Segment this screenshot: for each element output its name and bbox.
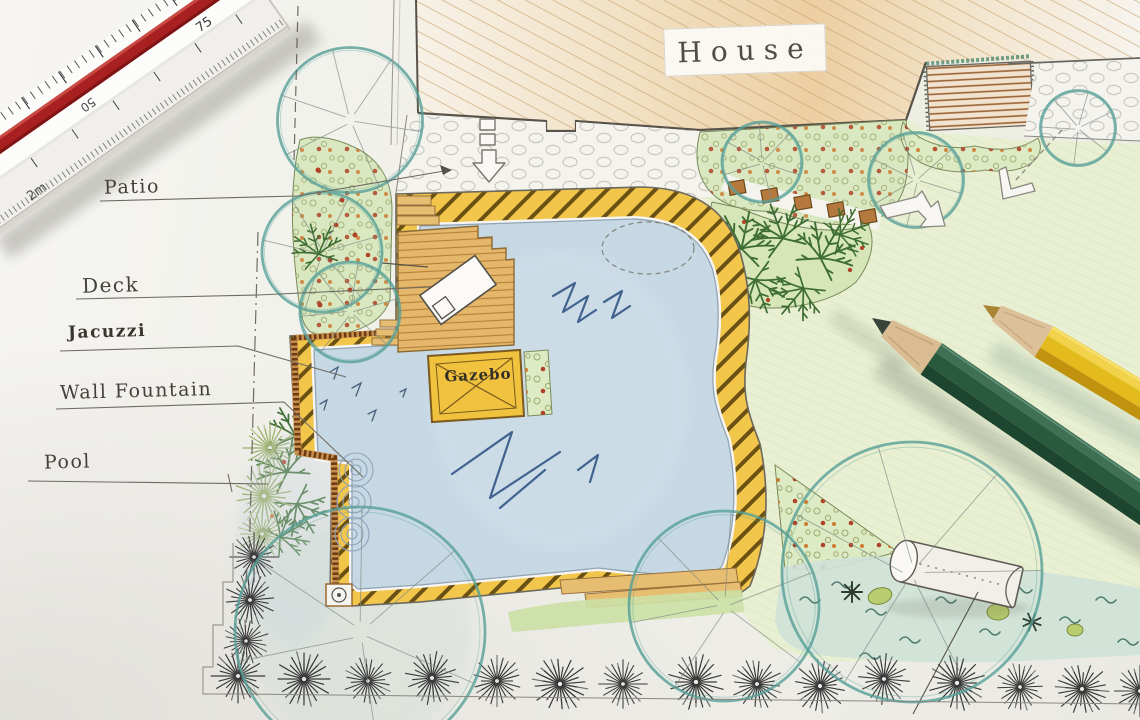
deck-label: Deck xyxy=(82,272,140,297)
pool-corner-drain xyxy=(326,584,352,606)
wall-fountain-label: Wall Fountain xyxy=(60,378,213,404)
gazebo-structure xyxy=(428,350,552,422)
plan-artwork: 75 50 2m xyxy=(0,0,1140,720)
flower-icon xyxy=(841,581,863,603)
pergola xyxy=(924,56,1035,131)
landscape-plan-photo: 75 50 2m House Patio Deck Jacuzzi Wall F… xyxy=(0,0,1140,720)
jacuzzi-label: Jacuzzi xyxy=(68,321,147,343)
patio-label: Patio xyxy=(104,175,160,198)
house-label: House xyxy=(663,23,827,77)
pool-label: Pool xyxy=(44,450,92,473)
